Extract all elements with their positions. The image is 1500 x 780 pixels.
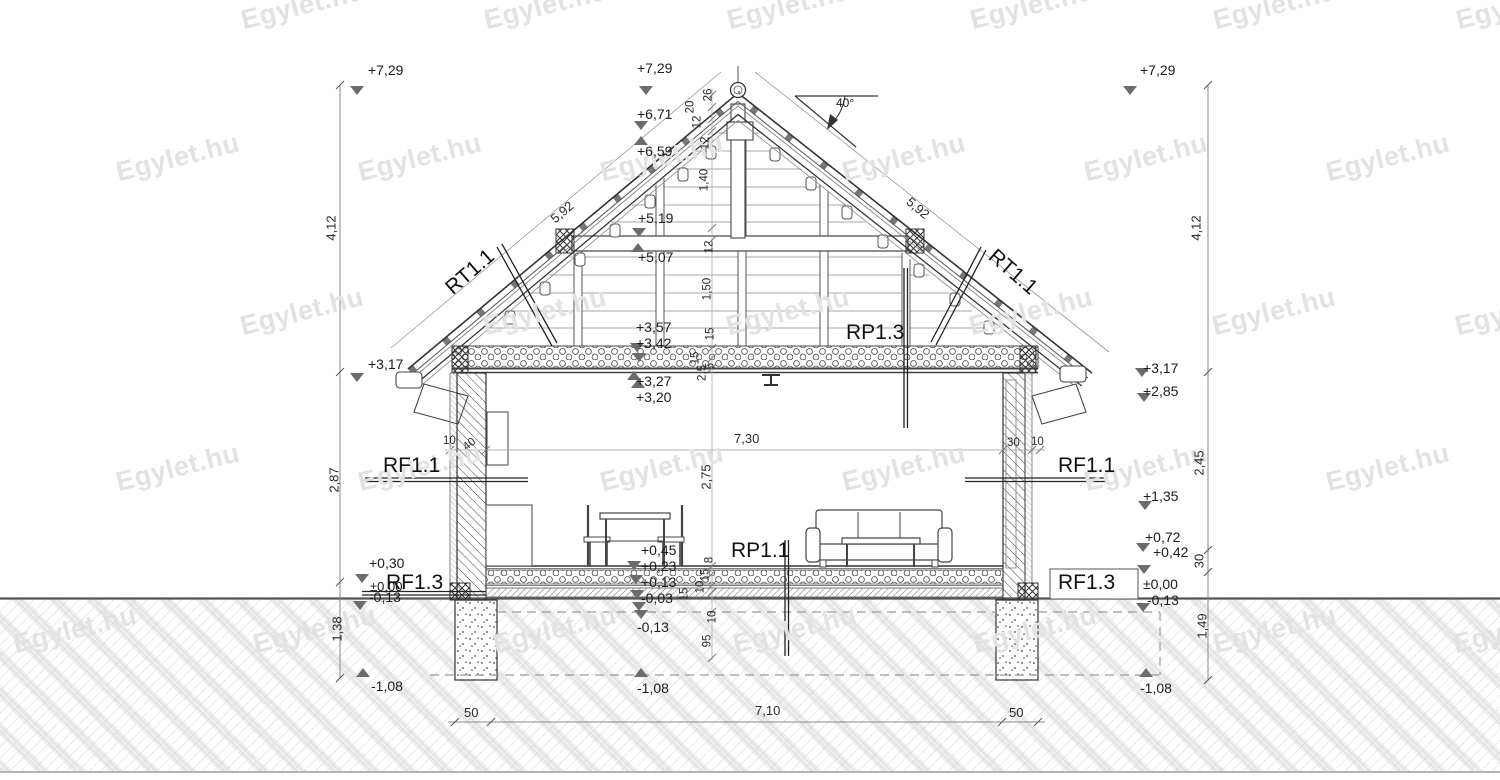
- dim-label: 1,40: [699, 169, 711, 191]
- dim-label: 15: [705, 328, 717, 341]
- right-wall: [1003, 373, 1038, 600]
- dim-label: 12: [704, 241, 716, 254]
- dim-label: 2,75: [700, 464, 713, 489]
- level-label: +5,07: [638, 250, 673, 264]
- level-label: +7,29: [1140, 63, 1175, 77]
- dim-label: 15: [700, 569, 712, 582]
- level-label: -1,08: [371, 679, 403, 693]
- dim-label: 26: [703, 89, 715, 102]
- component-label-rp13: RP1.3: [846, 322, 904, 343]
- level-label: -0,13: [1147, 593, 1179, 607]
- dim-label: 10: [707, 611, 719, 624]
- dim-label: 50: [1009, 706, 1023, 719]
- section-drawing-svg: [0, 0, 1500, 780]
- dim-label: 10: [695, 581, 707, 594]
- level-label: +3,17: [368, 357, 403, 371]
- floor-slab: [486, 566, 1003, 597]
- dim-label: 50: [464, 706, 478, 719]
- level-label: ±0,00: [1143, 577, 1178, 591]
- level-label: +0,45: [641, 543, 676, 557]
- dim-label: 1,38: [331, 616, 344, 641]
- dim-label: 30: [1007, 438, 1020, 450]
- dim-label: 12: [700, 137, 712, 150]
- dim-label: 4,12: [325, 215, 338, 240]
- cabinets: [486, 412, 532, 566]
- level-label: +1,35: [1143, 489, 1178, 503]
- king-post: [727, 104, 753, 238]
- component-label-rf13-left: RF1.3: [386, 572, 443, 593]
- level-label: +7,29: [368, 63, 403, 77]
- sofa: [806, 510, 952, 567]
- dim-label: 1,50: [702, 278, 714, 300]
- steel-beam-icon: [762, 375, 780, 385]
- dim-label: 30: [1193, 554, 1206, 568]
- ridge-cap: [731, 66, 746, 98]
- component-label-rf11-left: RF1.1: [383, 455, 440, 476]
- level-label: +5,19: [638, 211, 673, 225]
- dim-label: 8: [704, 557, 716, 563]
- level-label: +6,59: [637, 144, 672, 158]
- level-label: +7,29: [637, 61, 672, 75]
- dim-label: 2,87: [328, 467, 341, 492]
- dim-label: 4,12: [1190, 215, 1203, 240]
- level-label: +0,23: [641, 559, 676, 573]
- left-wall: [450, 373, 486, 600]
- component-label-rf11-right: RF1.1: [1058, 455, 1115, 476]
- ceiling-slab: [452, 346, 1038, 385]
- architectural-section-drawing: Egylet.hu Egylet.hu Egylet.hu Egylet.hu …: [0, 0, 1500, 780]
- component-label-rf13-right: RF1.3: [1058, 572, 1115, 593]
- dim-label: 2,45: [1193, 450, 1206, 475]
- level-label: -1,08: [1140, 681, 1172, 695]
- dim-label: 5: [705, 363, 717, 369]
- level-label: +0,30: [369, 556, 404, 570]
- level-label: -0,03: [641, 591, 673, 605]
- roof-angle-label: 40°: [836, 97, 854, 109]
- dim-label: 7,30: [734, 432, 759, 445]
- level-label: +6,71: [637, 107, 672, 121]
- level-label: -0,13: [637, 620, 669, 634]
- level-label: +0,72: [1145, 530, 1180, 544]
- dim-label: 1,49: [1196, 613, 1209, 638]
- dim-label: 12: [692, 116, 704, 129]
- level-label: +2,85: [1143, 384, 1178, 398]
- level-label: +0,42: [1153, 545, 1188, 559]
- level-label: +3,57: [636, 320, 671, 334]
- dim-label: 15: [690, 352, 702, 365]
- level-label: +0,13: [641, 575, 676, 589]
- dim-label: 7,10: [755, 704, 780, 717]
- dim-label: 20: [685, 101, 697, 114]
- dim-label: 95: [702, 635, 714, 648]
- level-label: +3,42: [636, 336, 671, 350]
- level-label: +3,20: [636, 390, 671, 404]
- dim-label: 15: [679, 588, 691, 601]
- component-label-rp11: RP1.1: [731, 540, 789, 561]
- level-label: -1,08: [637, 681, 669, 695]
- dim-label: 10: [443, 436, 456, 448]
- level-label: +3,27: [636, 374, 671, 388]
- dim-label: 10: [1031, 437, 1044, 449]
- level-label: +3,17: [1143, 361, 1178, 375]
